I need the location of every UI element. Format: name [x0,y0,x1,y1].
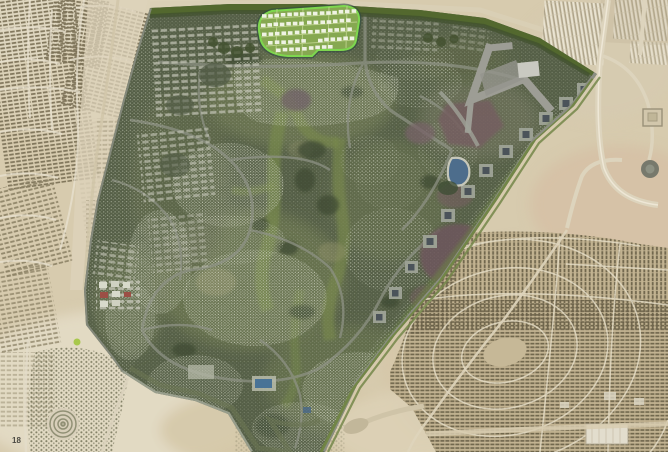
svg-text:18: 18 [12,436,21,445]
